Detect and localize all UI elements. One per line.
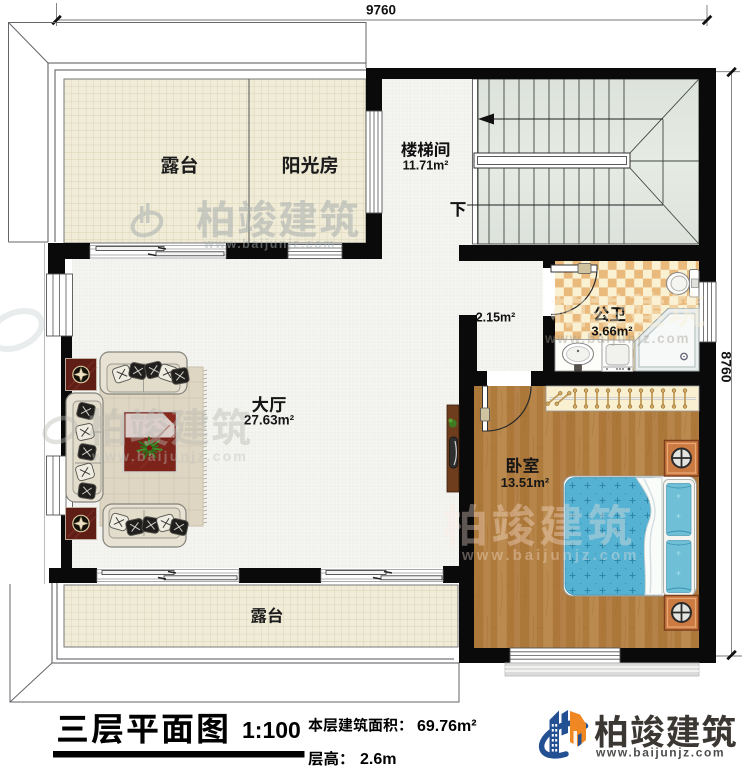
svg-text:2.15m²: 2.15m² [476,311,516,325]
svg-text:2.6m: 2.6m [360,751,396,768]
svg-text:www.baijunjz.com: www.baijunjz.com [461,547,639,564]
svg-text:www.baijunjz.com: www.baijunjz.com [544,331,690,346]
svg-text:8760: 8760 [719,351,735,382]
svg-text:69.76m²: 69.76m² [417,718,477,735]
svg-text:www.baijunjz.com: www.baijunjz.com [595,746,725,760]
svg-text:www.baijunjz.com: www.baijunjz.com [203,237,336,251]
svg-text:27.63m²: 27.63m² [244,413,295,428]
svg-text:13.51m²: 13.51m² [501,475,550,490]
svg-text:www.baijunjz.com: www.baijunjz.com [91,448,248,464]
svg-text:11.71m²: 11.71m² [403,159,449,173]
svg-text:1:100: 1:100 [242,717,301,743]
svg-text:9760: 9760 [366,3,396,18]
